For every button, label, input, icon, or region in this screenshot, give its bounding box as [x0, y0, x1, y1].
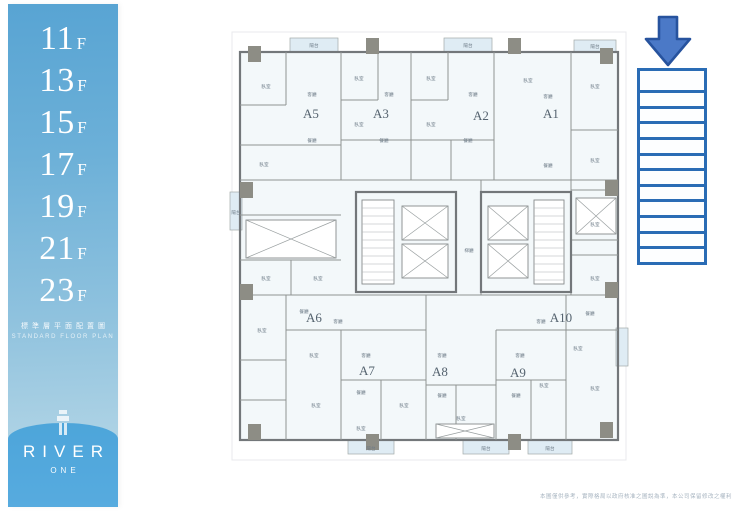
room-label: 臥室 — [590, 275, 600, 282]
room-label: 臥室 — [590, 221, 600, 228]
legend-row — [640, 156, 704, 172]
room-label: 臥室 — [261, 83, 271, 90]
brand-sub-name: ONE — [8, 466, 118, 475]
floor-label-11f: 11F — [8, 18, 118, 60]
unit-label-a7: A7 — [359, 363, 375, 378]
legend-row — [640, 171, 704, 187]
room-label: 餐廳 — [356, 389, 366, 396]
unit-label-a1: A1 — [543, 106, 559, 121]
floor-label-21f: 21F — [8, 228, 118, 270]
room-label: 陽台 — [481, 445, 491, 452]
room-label: 餐廳 — [437, 392, 447, 399]
legend-row — [640, 71, 704, 93]
unit-label-a2: A2 — [473, 108, 489, 123]
room-label: 餐廳 — [379, 137, 389, 144]
legend-row — [640, 218, 704, 234]
unit-label-a9: A9 — [510, 365, 526, 380]
room-label: 客廳 — [307, 91, 317, 98]
disclaimer-text: 本圖僅供參考，實際格局以政府核准之圖說為準，本公司保留修改之權利 — [540, 492, 732, 500]
subtitle-en: STANDARD FLOOR PLAN — [8, 334, 118, 340]
room-label: 陽台 — [231, 209, 241, 216]
room-label: 臥室 — [257, 327, 267, 334]
room-label: 客廳 — [536, 318, 546, 325]
room-label: 臥室 — [309, 352, 319, 359]
legend-row — [640, 93, 704, 109]
legend-row — [640, 140, 704, 156]
room-label: 臥室 — [426, 75, 436, 82]
room-label: 客廳 — [333, 318, 343, 325]
room-label: 客廳 — [515, 352, 525, 359]
room-label: 臥室 — [539, 382, 549, 389]
room-label: 臥室 — [261, 275, 271, 282]
unit-label-a3: A3 — [373, 106, 389, 121]
brand-name: RIVER — [8, 442, 118, 462]
room-label: 臥室 — [426, 121, 436, 128]
legend-row — [640, 124, 704, 140]
room-label: 臥室 — [313, 275, 323, 282]
floor-list: 11F13F15F17F19F21F23F — [8, 4, 118, 312]
room-label: 臥室 — [356, 425, 366, 432]
room-label: 陽台 — [545, 445, 555, 452]
floor-label-13f: 13F — [8, 60, 118, 102]
brand-emblem-icon — [54, 410, 72, 436]
room-label: 客廳 — [437, 352, 447, 359]
room-label: 臥室 — [354, 75, 364, 82]
legend-row — [640, 249, 704, 262]
room-label: 客廳 — [468, 91, 478, 98]
room-label: 臥室 — [399, 402, 409, 409]
subtitle-zh: 標準層平面配置圖 — [8, 321, 118, 331]
room-label: 臥室 — [590, 385, 600, 392]
room-label: 陽台 — [366, 445, 376, 452]
sidebar: 11F13F15F17F19F21F23F 標準層平面配置圖 STANDARD … — [8, 4, 118, 507]
legend-row — [640, 202, 704, 218]
room-label: 客廳 — [543, 93, 553, 100]
floorplan-area: 臥室客廳餐廳臥室臥室客廳臥室餐廳臥室客廳臥室餐廳臥室客廳臥室餐廳臥室臥室臥室陽台… — [226, 30, 632, 462]
room-label: 臥室 — [590, 157, 600, 164]
floorplan-drawing: 臥室客廳餐廳臥室臥室客廳臥室餐廳臥室客廳臥室餐廳臥室客廳臥室餐廳臥室臥室臥室陽台… — [226, 30, 632, 462]
room-label: 陽台 — [309, 42, 319, 49]
room-label: 陽台 — [463, 42, 473, 49]
room-label: 陽台 — [590, 43, 600, 50]
legend-row — [640, 234, 704, 250]
unit-label-a8: A8 — [432, 364, 448, 379]
floor-label-19f: 19F — [8, 186, 118, 228]
room-label: 餐廳 — [307, 137, 317, 144]
floor-label-17f: 17F — [8, 144, 118, 186]
room-label: 餐廳 — [543, 162, 553, 169]
unit-label-a5: A5 — [303, 106, 319, 121]
room-label: 客廳 — [361, 352, 371, 359]
down-arrow-icon — [642, 15, 694, 67]
room-label: 臥室 — [573, 345, 583, 352]
floor-label-15f: 15F — [8, 102, 118, 144]
room-label: 臥室 — [259, 161, 269, 168]
room-label: 臥室 — [456, 415, 466, 422]
room-label: 臥室 — [590, 83, 600, 90]
room-label: 餐廳 — [511, 392, 521, 399]
unit-label-a6: A6 — [306, 310, 322, 325]
brand-logo: RIVER ONE — [8, 410, 118, 475]
brochure-page: 11F13F15F17F19F21F23F 標準層平面配置圖 STANDARD … — [0, 0, 740, 511]
room-label: 餐廳 — [585, 310, 595, 317]
legend-row — [640, 187, 704, 203]
floor-label-23f: 23F — [8, 270, 118, 312]
room-label: 臥室 — [354, 121, 364, 128]
legend-row — [640, 109, 704, 125]
room-label: 臥室 — [523, 77, 533, 84]
room-label: 梯廳 — [464, 247, 474, 254]
room-label: 餐廳 — [463, 137, 473, 144]
unit-label-a10: A10 — [550, 310, 572, 325]
room-label: 客廳 — [384, 91, 394, 98]
floor-legend-table — [637, 68, 707, 265]
room-label: 臥室 — [311, 402, 321, 409]
